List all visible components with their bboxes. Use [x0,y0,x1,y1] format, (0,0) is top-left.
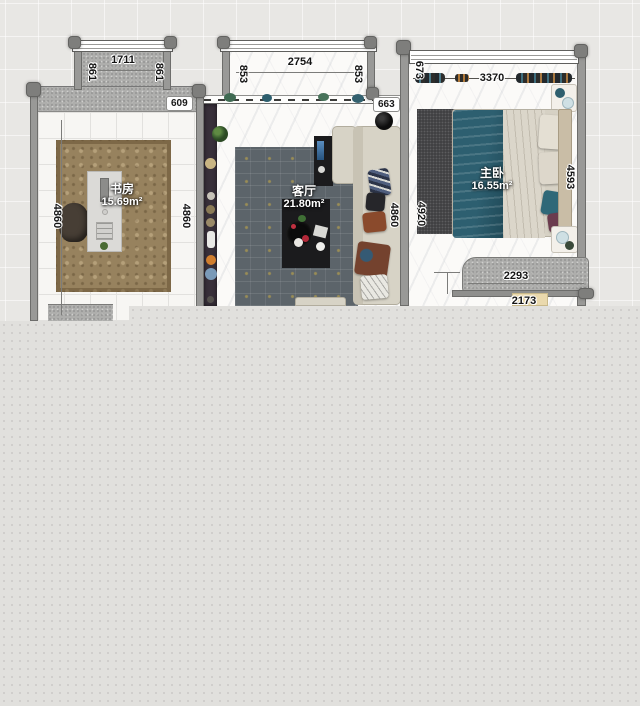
wall-corner [164,36,177,49]
sprout-icon [298,215,306,222]
desk-lamp-icon [102,209,108,215]
tv-cabinet[interactable] [314,136,333,186]
unrendered-area [0,321,640,706]
dimension-line [434,272,460,273]
living-bay-left-wall[interactable] [222,44,230,98]
cup-icon [316,242,325,251]
curtain-icon [455,74,469,82]
sill-plant-icon [352,94,364,103]
berry-icon [302,235,309,242]
master-room-label: 主卧 16.55m² [452,167,532,193]
room-name: 客厅 [264,185,344,198]
flower-icon [206,255,216,265]
nightstand[interactable] [551,84,577,112]
dimension-pill[interactable]: 609 [166,96,193,111]
speaker-icon [318,166,325,173]
unrendered-area [129,306,640,322]
dimension-label: 861 [86,52,98,92]
tv-screen-icon [317,141,324,160]
dimension-label: 4920 [415,194,427,234]
dimension-label: 4860 [51,196,63,236]
dimension-label: 3370 [469,72,515,84]
dimension-label: 673 [413,50,425,90]
pendant-light-icon[interactable] [375,112,393,130]
wall-corner [26,82,41,97]
sill-plant-icon [262,94,272,102]
berry-icon [291,224,296,229]
dimension-label: 4860 [180,196,192,236]
dimension-label: 853 [352,54,364,94]
study-left-wall[interactable] [30,86,38,321]
living-master-wall[interactable] [400,44,409,306]
study-living-wall[interactable] [196,96,204,321]
ottoman[interactable] [295,297,346,306]
dimension-label: 4593 [564,157,576,197]
dimension-label: 2754 [277,56,323,68]
dimension-label: 4860 [388,195,400,235]
berry-icon [294,238,303,247]
vase-icon [562,97,574,109]
ornament-icon [207,296,214,303]
dimension-label: 1711 [100,54,146,66]
ornament-icon [206,205,215,214]
plant-icon[interactable] [212,126,228,142]
printer-icon [96,222,113,240]
wall-corner [578,288,594,299]
room-area: 16.55m² [452,180,532,193]
study-bay-window[interactable] [72,40,173,52]
ornament-icon [205,158,216,169]
sofa-pillow[interactable] [354,241,391,278]
plant-icon [555,88,565,98]
side-table[interactable] [551,226,578,253]
desk-plant-icon [100,242,108,250]
room-area: 15.69m² [82,196,162,209]
dimension-line [468,283,584,284]
floorplan-canvas[interactable]: 1711 861 861 609 书房 15.69m² 4860 4860 [0,0,640,706]
dimension-pill[interactable]: 663 [373,97,400,112]
sofa-pillow[interactable] [360,274,389,300]
figurine-icon [207,231,215,248]
snowflake-icon [205,268,217,280]
living-bay-window[interactable] [220,40,377,52]
room-name: 主卧 [452,167,532,180]
sofa-pillow[interactable] [362,211,387,233]
leaf-icon [565,241,574,250]
living-room-label: 客厅 21.80m² [264,185,344,211]
dimension-label: 853 [237,54,249,94]
dimension-line [236,72,362,73]
ornament-icon [207,192,215,200]
sofa-pillow[interactable] [365,192,385,212]
room-name: 书房 [82,183,162,196]
bottom-wall-fragment[interactable] [48,304,113,321]
dimension-label: 861 [153,52,165,92]
wall-corner [192,84,206,98]
sill-plant-icon [318,93,329,101]
study-room-label: 书房 15.69m² [82,183,162,209]
room-area: 21.80m² [264,198,344,211]
wall-corner [217,36,230,49]
wall-corner [574,44,588,58]
tray-icon [313,225,328,239]
ornament-icon [206,218,215,227]
master-top-window[interactable] [409,50,579,64]
wall-corner [68,36,81,49]
dimension-label: 2293 [493,270,539,282]
dimension-line [447,272,448,294]
curtain-icon [516,73,572,83]
wall-corner [364,36,377,49]
sill-plant-icon [224,93,236,102]
